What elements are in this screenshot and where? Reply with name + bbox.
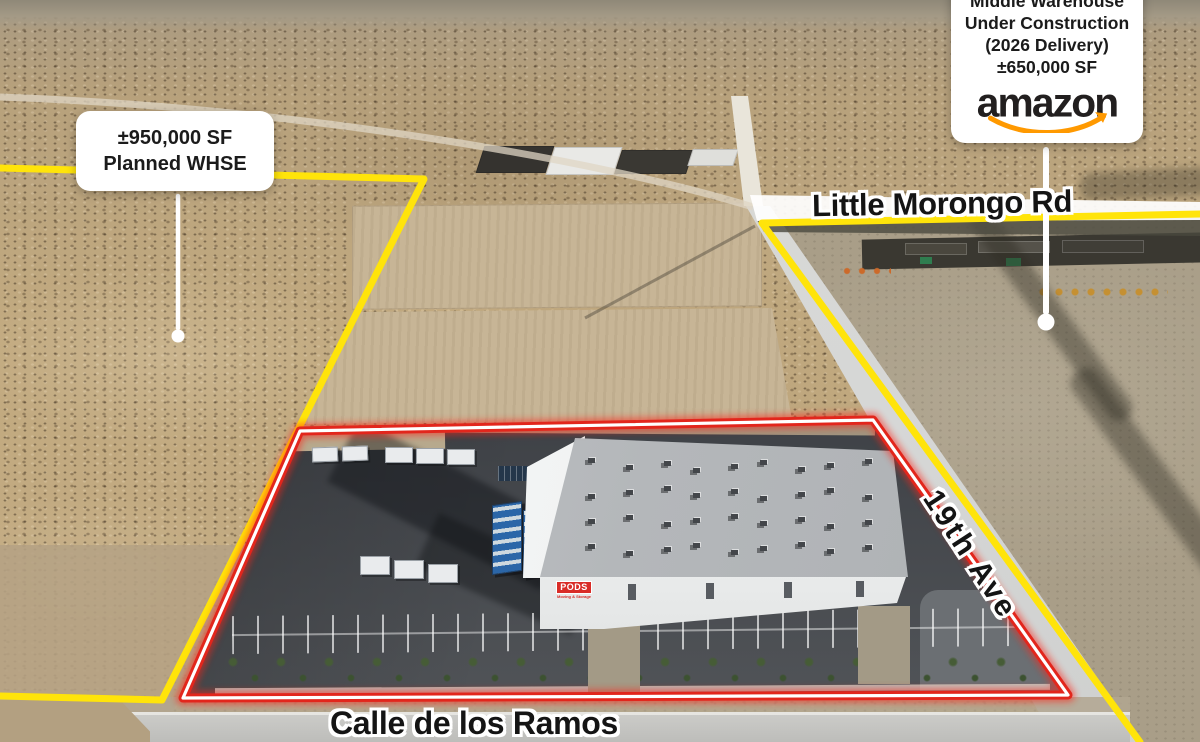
parcel-boundary-amazon	[762, 214, 1200, 742]
amazon-line-4: ±650,000 SF	[955, 56, 1139, 78]
leader-dot-planned	[172, 330, 185, 343]
aerial-site-photo: PODS Moving & Storage Little Morongo Rd …	[0, 0, 1200, 742]
amazon-line-2: Under Construction	[955, 12, 1139, 34]
utility-trench-line	[585, 226, 755, 318]
callout-planned-whse: ±950,000 SF Planned WHSE	[76, 111, 274, 191]
amazon-line-3: (2026 Delivery)	[955, 34, 1139, 56]
amazon-line-1: Middle Warehouse	[955, 0, 1139, 12]
leader-dot-amazon	[1038, 314, 1055, 331]
road-label-calle-de-los-ramos: Calle de los Ramos	[330, 705, 618, 742]
planned-use-line: Planned WHSE	[76, 151, 274, 177]
amazon-logo: amazon	[968, 83, 1126, 133]
callout-amazon-warehouse: Middle Warehouse Under Construction (202…	[951, 0, 1143, 143]
planned-sf-line: ±950,000 SF	[76, 125, 274, 151]
road-label-little-morongo: Little Morongo Rd	[812, 184, 1073, 225]
